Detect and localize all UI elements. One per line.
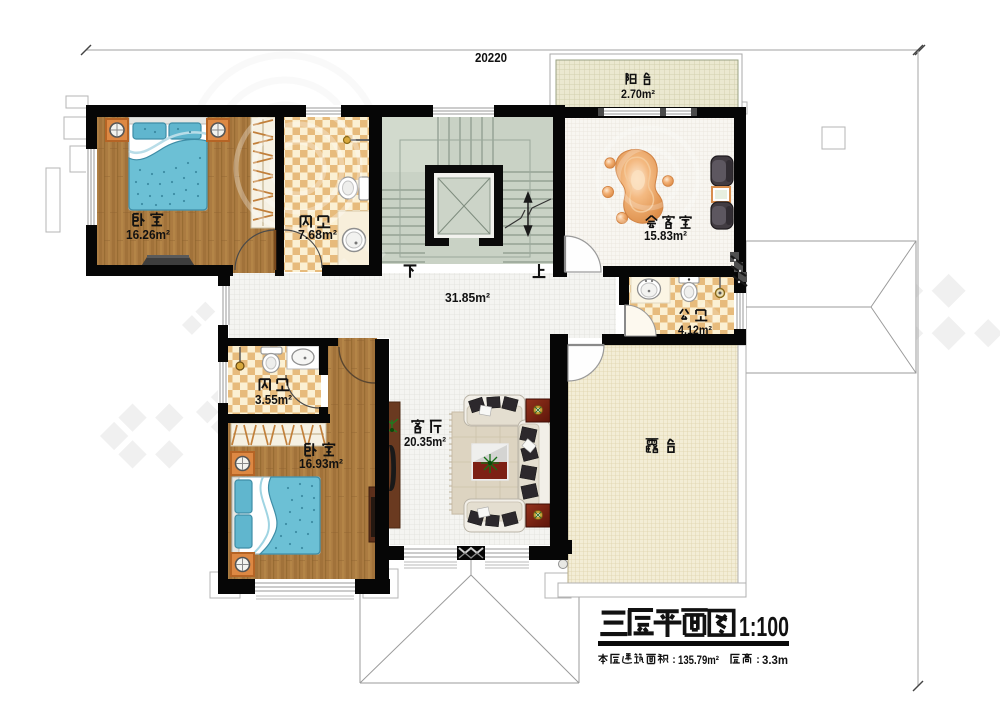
svg-text:20.35m²: 20.35m²: [404, 435, 446, 449]
svg-text:135.79m²: 135.79m²: [678, 653, 719, 667]
svg-text:4.12m²: 4.12m²: [678, 325, 712, 337]
svg-text:16.93m²: 16.93m²: [299, 457, 343, 471]
svg-text:31.85m²: 31.85m²: [445, 290, 491, 305]
svg-text:15.83m²: 15.83m²: [644, 229, 687, 243]
svg-text:7.68m²: 7.68m²: [298, 228, 337, 242]
svg-text:3.55m²: 3.55m²: [255, 393, 292, 407]
svg-text:20220: 20220: [475, 51, 507, 65]
svg-text:16.26m²: 16.26m²: [126, 228, 170, 242]
svg-text:3.3m: 3.3m: [762, 653, 788, 667]
svg-text:1:100: 1:100: [739, 611, 789, 642]
svg-text:2.70m²: 2.70m²: [621, 89, 655, 101]
